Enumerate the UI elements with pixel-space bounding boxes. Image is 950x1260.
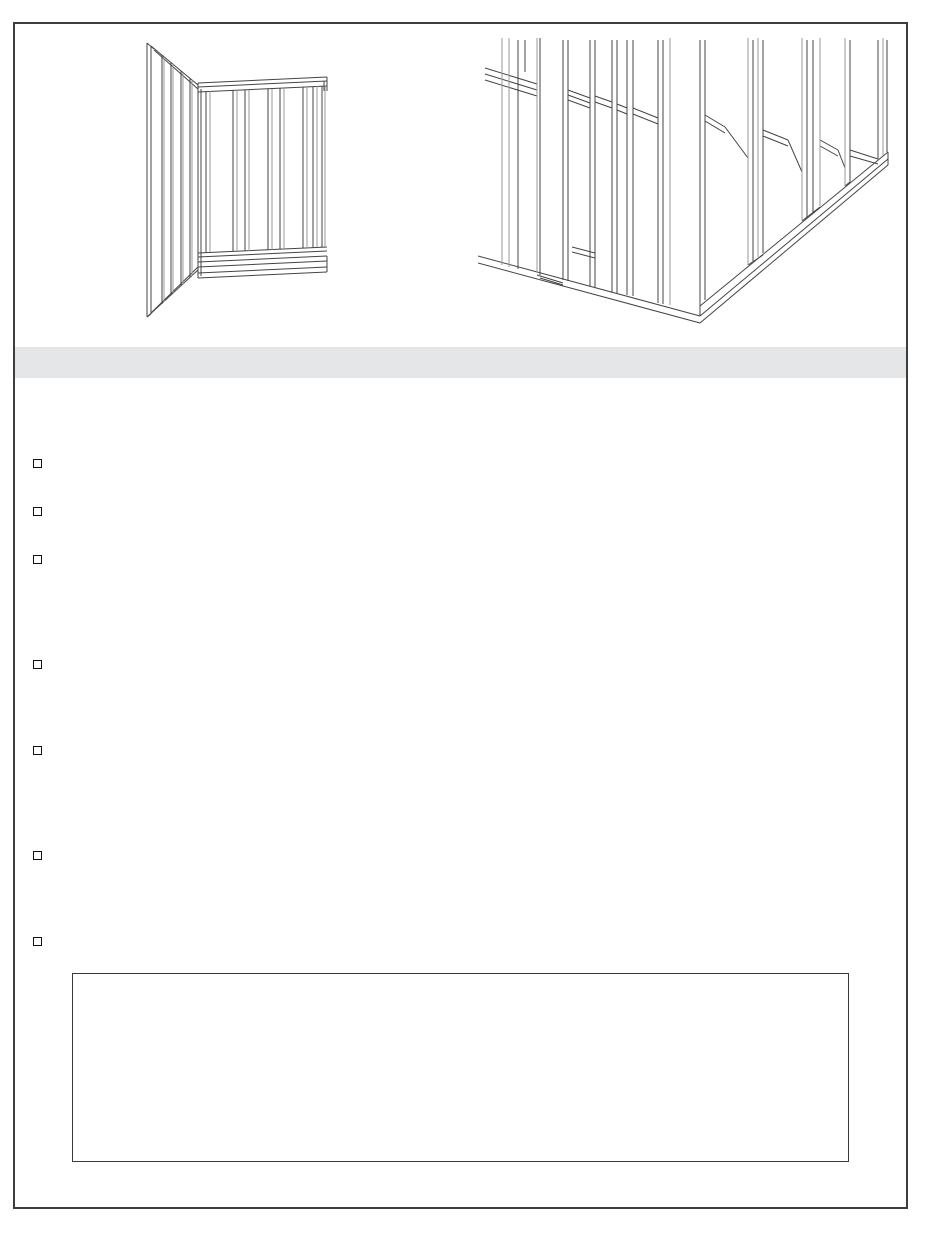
note-box	[72, 973, 849, 1162]
checkbox-unchecked-icon[interactable]	[33, 851, 42, 860]
checklist-item	[33, 507, 52, 516]
figure-wall-framing-corner-closeup	[478, 32, 894, 328]
wall-framing-corner-overview-drawing	[138, 36, 334, 328]
checklist-item	[33, 746, 52, 755]
checkbox-unchecked-icon[interactable]	[33, 660, 42, 669]
checklist-item	[33, 851, 52, 860]
checkbox-unchecked-icon[interactable]	[33, 459, 42, 468]
checklist-item	[33, 937, 52, 946]
checklist-item	[33, 459, 52, 468]
checkbox-unchecked-icon[interactable]	[33, 555, 42, 564]
checklist-item	[33, 555, 52, 564]
checkbox-unchecked-icon[interactable]	[33, 507, 42, 516]
section-header-band	[15, 347, 906, 378]
checklist-item	[33, 660, 52, 669]
document-page	[0, 0, 950, 1260]
wall-framing-corner-closeup-drawing	[478, 32, 894, 328]
checkbox-unchecked-icon[interactable]	[33, 746, 42, 755]
checkbox-unchecked-icon[interactable]	[33, 937, 42, 946]
figure-wall-framing-corner-overview	[138, 36, 334, 328]
